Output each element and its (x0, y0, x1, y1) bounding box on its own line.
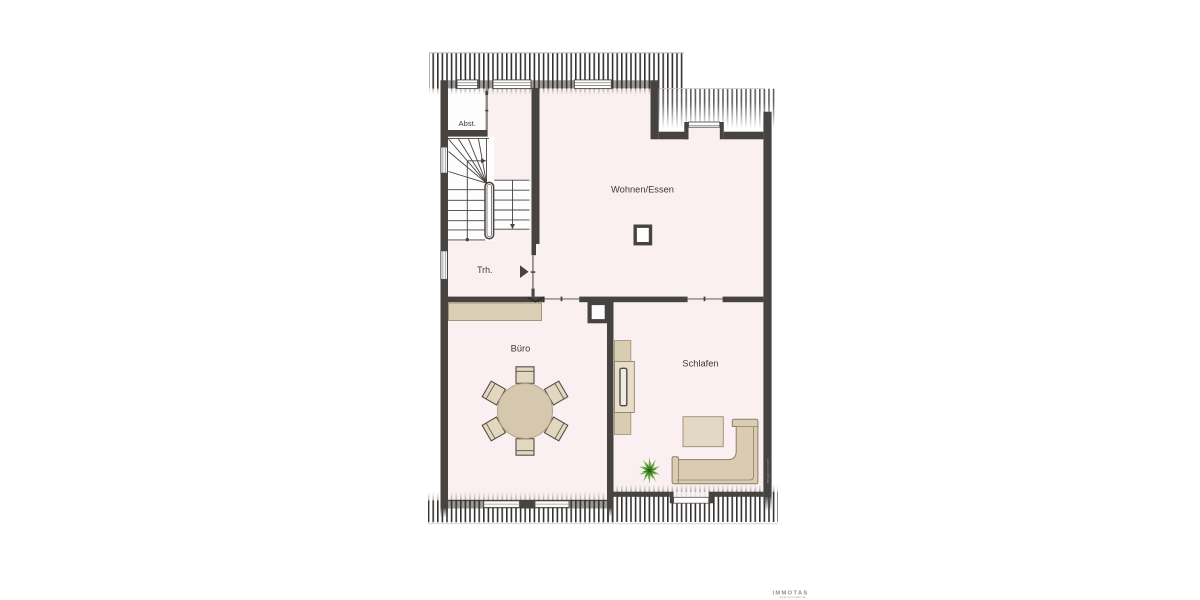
svg-text:Maßangaben ohne Gewähr: Maßangaben ohne Gewähr (767, 458, 769, 483)
svg-text:Trh.: Trh. (477, 265, 492, 275)
svg-text:Büro: Büro (511, 344, 531, 354)
svg-text:Schlafen: Schlafen (682, 358, 718, 368)
svg-text:Wohnen/Essen: Wohnen/Essen (611, 185, 674, 195)
svg-text:www.immotas.de: www.immotas.de (779, 595, 806, 599)
svg-text:Abst.: Abst. (459, 119, 476, 128)
